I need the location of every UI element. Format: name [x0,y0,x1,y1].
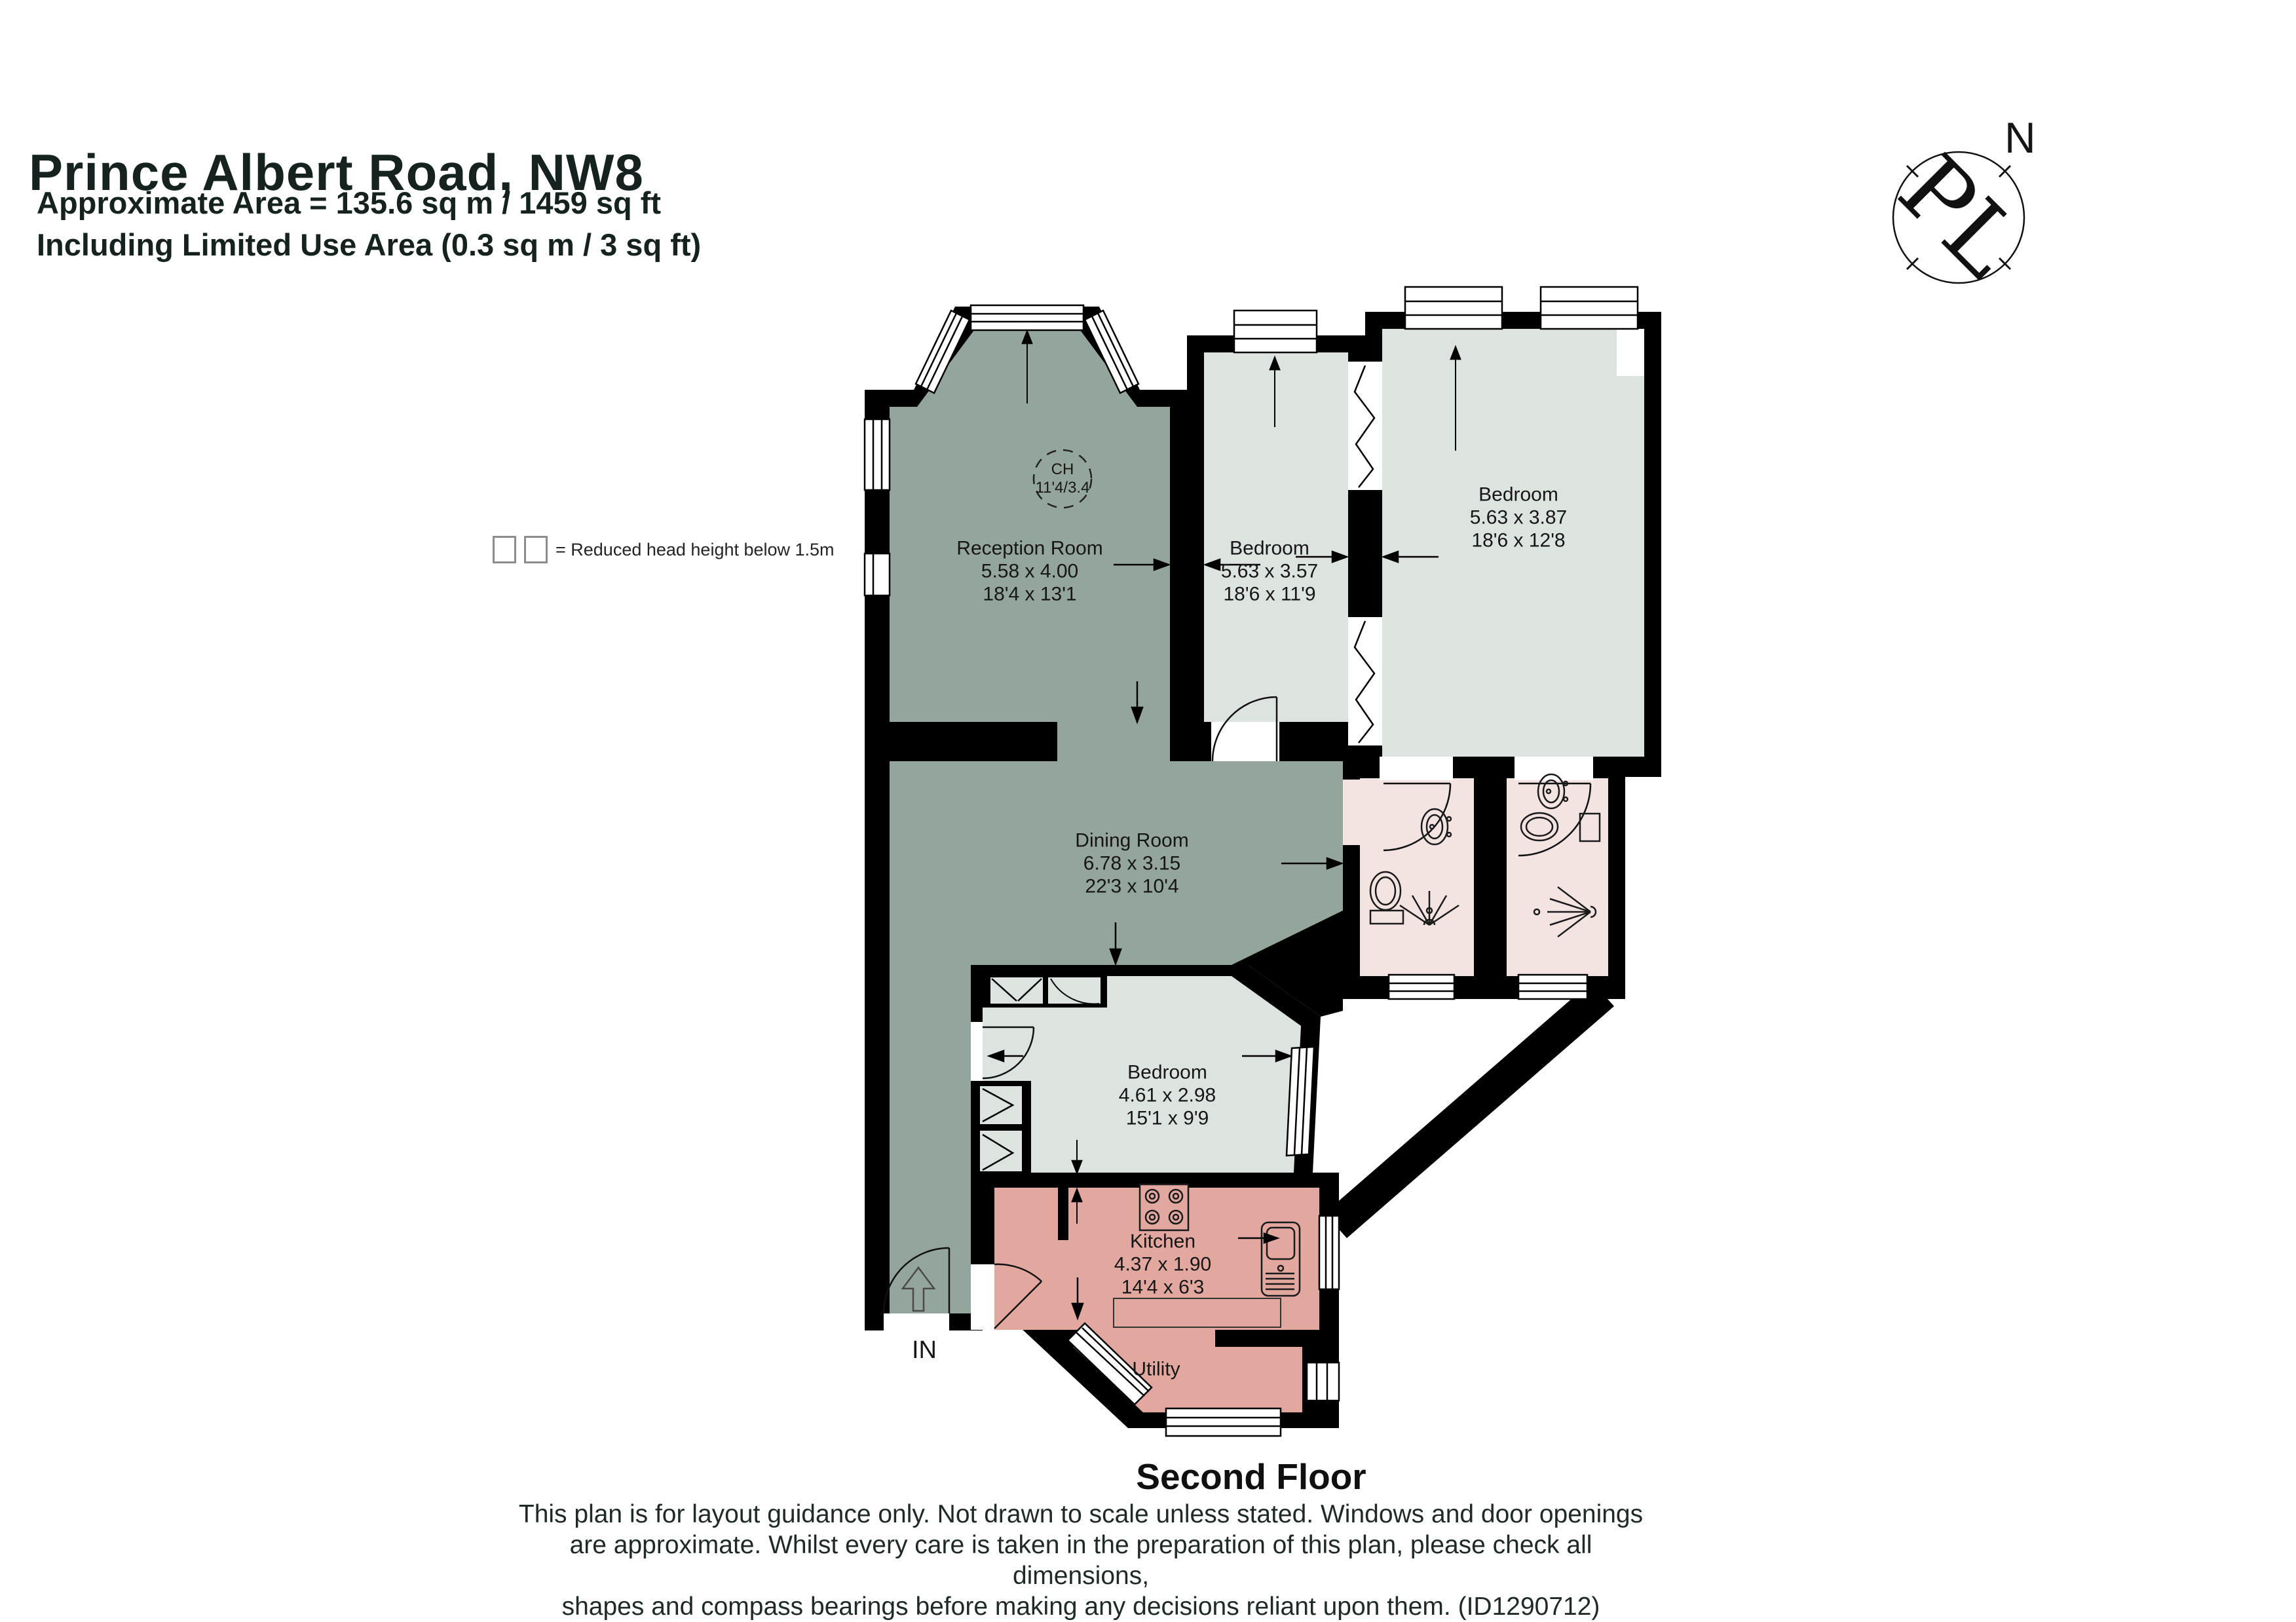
room-imperial: 15'1 x 9'9 [1119,1107,1216,1130]
disclaimer-line-3: shapes and compass bearings before makin… [504,1591,1657,1622]
room-name: Utility [1132,1358,1180,1381]
room-name: Dining Room [1075,829,1188,852]
bay-top-window [971,305,1083,330]
legend: = Reduced head height below 1.5m [493,536,835,563]
approximate-area: Approximate Area = 135.6 sq m / 1459 sq … [37,185,661,221]
legend-text: = Reduced head height below 1.5m [555,540,835,560]
reception-left-window [865,419,890,490]
bathroom-right-window [1518,975,1587,999]
room-metric: 4.37 x 1.90 [1114,1253,1211,1276]
bedroom-mid-window [1234,311,1317,352]
utility-right-window [1307,1363,1339,1401]
floorplan-page: PL Prince Albert Road, NW8 Approximate A… [0,0,2296,1622]
room-imperial: 22'3 x 10'4 [1075,875,1188,898]
room-name: Bedroom [1119,1061,1216,1084]
room-name: Bedroom [1221,537,1318,560]
room-name: Bedroom [1470,483,1567,506]
room-label-kitchen: Kitchen 4.37 x 1.90 14'4 x 6'3 [1114,1230,1211,1299]
room-metric: 5.63 x 3.57 [1221,560,1318,583]
reception-left-window-2 [865,554,890,595]
bathroom-right-floor [1507,778,1608,976]
room-metric: 5.63 x 3.87 [1470,506,1567,529]
room-imperial: 18'4 x 13'1 [956,583,1102,606]
entrance-label: IN [912,1336,937,1365]
room-imperial: 14'4 x 6'3 [1114,1276,1211,1299]
bedroom-lower-window [1287,1047,1314,1156]
room-metric: 6.78 x 3.15 [1075,852,1188,875]
ceiling-height-label: CH 11'4/3.4 [1036,461,1090,497]
room-label-utility: Utility [1132,1358,1180,1381]
bathroom-lobby-opening [1343,780,1360,845]
room-label-bedroom-right: Bedroom 5.63 x 3.87 18'6 x 12'8 [1470,483,1567,552]
room-metric: 4.61 x 2.98 [1119,1084,1216,1107]
room-name: Reception Room [956,537,1102,560]
room-label-bedroom-mid: Bedroom 5.63 x 3.57 18'6 x 11'9 [1221,537,1318,606]
disclaimer-line-2: are approximate. Whilst every care is ta… [504,1530,1657,1591]
room-imperial: 18'6 x 12'8 [1470,529,1567,552]
bedroom-right-window-1 [1405,287,1502,329]
disclaimer: This plan is for layout guidance only. N… [504,1499,1657,1622]
compass-north-label: N [2004,113,2036,162]
room-label-bedroom-lower: Bedroom 4.61 x 2.98 15'1 x 9'9 [1119,1061,1216,1130]
room-name: Kitchen [1114,1230,1211,1253]
disclaimer-line-1: This plan is for layout guidance only. N… [504,1499,1657,1530]
kitchen-window [1319,1216,1339,1289]
room-metric: 5.58 x 4.00 [956,560,1102,583]
limited-use-area: Including Limited Use Area (0.3 sq m / 3… [37,227,701,263]
floor-name: Second Floor [1136,1456,1366,1498]
bedroom-right-window-2 [1541,287,1638,329]
hob-icon [1140,1184,1188,1230]
utility-bottom-window [1166,1408,1281,1436]
reduced-head-height-icon [493,536,548,563]
reception-dining-opening [1057,722,1170,761]
room-label-dining: Dining Room 6.78 x 3.15 22'3 x 10'4 [1075,829,1188,898]
bathroom-left-floor [1360,778,1474,976]
room-label-reception: Reception Room 5.58 x 4.00 18'4 x 13'1 [956,537,1102,606]
bathroom-left-window [1389,975,1454,999]
room-imperial: 18'6 x 11'9 [1221,583,1318,606]
